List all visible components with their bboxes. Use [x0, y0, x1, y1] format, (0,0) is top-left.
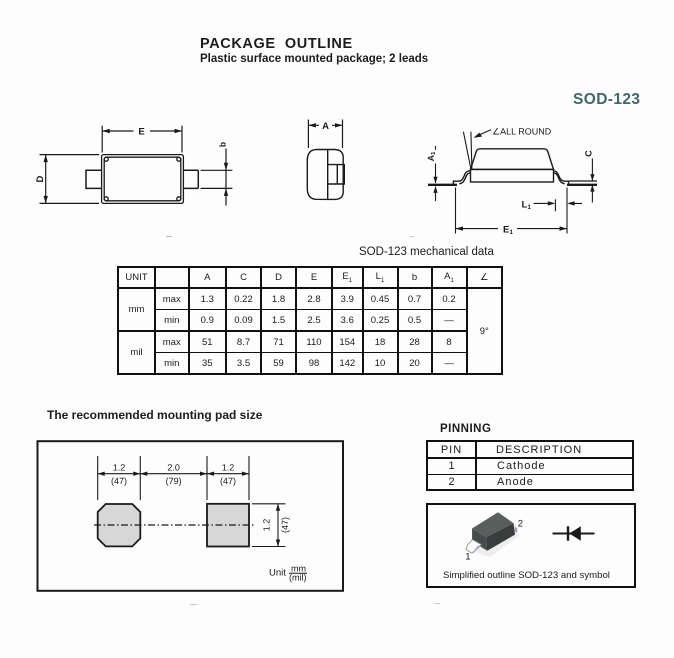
- svg-text:(47): (47): [280, 517, 290, 533]
- svg-text:L1: L1: [522, 200, 532, 212]
- svg-text:1.2: 1.2: [113, 463, 126, 473]
- svg-text:C: C: [584, 150, 594, 157]
- svg-text:E1: E1: [503, 225, 513, 237]
- svg-text:1.2: 1.2: [262, 519, 272, 532]
- svg-text:2.0: 2.0: [167, 463, 180, 473]
- svg-text:A: A: [322, 121, 329, 132]
- svg-text:A1: A1: [426, 151, 437, 162]
- svg-text:1.2: 1.2: [222, 463, 235, 473]
- svg-text:1: 1: [465, 552, 470, 563]
- svg-text:(47): (47): [220, 476, 236, 486]
- svg-text:2: 2: [518, 519, 523, 530]
- svg-text:(47): (47): [111, 476, 127, 486]
- svg-text:(79): (79): [166, 476, 182, 486]
- svg-text:∠ALL ROUND: ∠ALL ROUND: [492, 127, 552, 137]
- svg-text:Unit: Unit: [269, 568, 286, 579]
- svg-text:b: b: [218, 142, 228, 147]
- svg-text:E: E: [138, 127, 144, 138]
- svg-text:D: D: [35, 175, 46, 182]
- svg-text:(mil): (mil): [289, 573, 307, 583]
